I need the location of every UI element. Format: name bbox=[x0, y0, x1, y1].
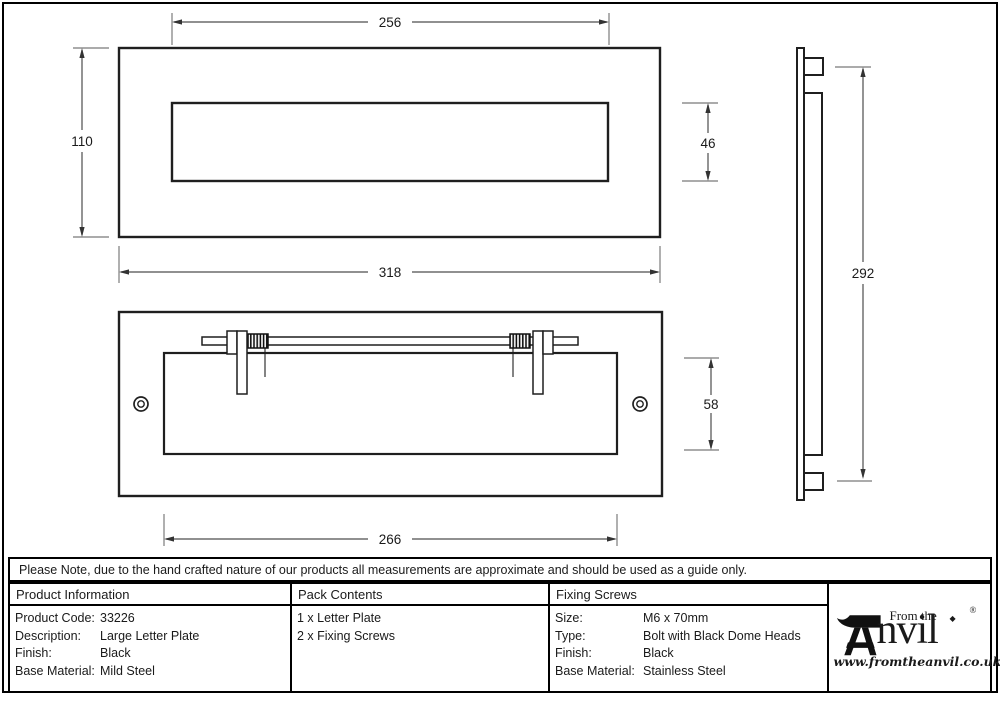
from-the-anvil-logo: From the ◆ ® nvil www.fromtheanvil.co.uk bbox=[834, 607, 986, 669]
pivot-arm-left bbox=[237, 331, 247, 394]
dimension-flap-height: 58 bbox=[684, 358, 719, 450]
note-text: Please Note, due to the hand crafted nat… bbox=[19, 563, 747, 577]
dimension-overall-height: 292 bbox=[835, 67, 874, 481]
pack-contents-item: 1 x Letter Plate bbox=[297, 610, 543, 628]
header-pack-contents: Pack Contents bbox=[290, 584, 548, 606]
dim-label-overall-height: 292 bbox=[852, 266, 875, 281]
product-information-cell: Product Code: 33226 Description: Large L… bbox=[10, 606, 290, 691]
product-info-row: Description: Large Letter Plate bbox=[15, 628, 285, 646]
spec-table: Product Information Pack Contents Fixing… bbox=[8, 582, 992, 693]
pack-contents-cell: 1 x Letter Plate 2 x Fixing Screws bbox=[290, 606, 548, 691]
side-top-tab bbox=[804, 58, 823, 75]
dimension-plate-width: 318 bbox=[119, 246, 660, 283]
diamond-icon: ◆ bbox=[950, 614, 956, 623]
screw-hole-right bbox=[633, 397, 647, 411]
dim-label-plate-width: 318 bbox=[379, 265, 402, 280]
logo-cell: From the ◆ ® nvil www.fromtheanvil.co.uk bbox=[827, 584, 990, 691]
dimension-aperture-height: 46 bbox=[682, 103, 718, 181]
dimension-plate-height: 110 bbox=[71, 48, 109, 237]
front-view bbox=[119, 48, 660, 237]
back-flap-outline bbox=[164, 353, 617, 454]
header-product-information: Product Information bbox=[10, 584, 290, 606]
pivot-block-left bbox=[227, 331, 237, 354]
dim-label-flap-width: 266 bbox=[379, 532, 402, 547]
dimension-aperture-width: 256 bbox=[172, 13, 609, 45]
side-view bbox=[797, 48, 823, 500]
product-info-row: Base Material: Mild Steel bbox=[15, 663, 285, 681]
screw-hole-left bbox=[134, 397, 148, 411]
back-view bbox=[119, 312, 662, 496]
pivot-arm-right bbox=[533, 331, 543, 394]
header-fixing-screws: Fixing Screws bbox=[548, 584, 827, 606]
fixing-screws-row: Size: M6 x 70mm bbox=[555, 610, 822, 628]
dimension-flap-width: 266 bbox=[164, 514, 617, 547]
side-bottom-tab bbox=[804, 473, 823, 490]
pack-contents-item: 2 x Fixing Screws bbox=[297, 628, 543, 646]
logo-website: www.fromtheanvil.co.uk bbox=[834, 654, 986, 669]
side-plate-outline bbox=[797, 48, 804, 500]
front-aperture-outline bbox=[172, 103, 608, 181]
registered-mark: ® bbox=[970, 605, 977, 615]
spring-left bbox=[248, 334, 268, 348]
dim-label-flap-height: 58 bbox=[703, 397, 718, 412]
fixing-screws-row: Finish: Black bbox=[555, 645, 822, 663]
fixing-screws-row: Base Material: Stainless Steel bbox=[555, 663, 822, 681]
spring-right bbox=[510, 334, 530, 348]
dim-label-aperture-height: 46 bbox=[700, 136, 715, 151]
product-info-row: Finish: Black bbox=[15, 645, 285, 663]
dim-label-aperture-width: 256 bbox=[379, 15, 402, 30]
pivot-block-right bbox=[543, 331, 553, 354]
anvil-icon bbox=[836, 613, 882, 657]
dim-label-plate-height: 110 bbox=[71, 134, 93, 149]
technical-drawing: 256 110 318 bbox=[0, 0, 1000, 557]
side-flap-profile bbox=[804, 93, 822, 455]
note-bar: Please Note, due to the hand crafted nat… bbox=[8, 557, 992, 582]
product-info-row: Product Code: 33226 bbox=[15, 610, 285, 628]
fixing-screws-cell: Size: M6 x 70mm Type: Bolt with Black Do… bbox=[548, 606, 827, 691]
logo-name-text: nvil bbox=[877, 609, 938, 651]
fixing-screws-row: Type: Bolt with Black Dome Heads bbox=[555, 628, 822, 646]
spec-sheet-page: 256 110 318 bbox=[0, 0, 1000, 703]
